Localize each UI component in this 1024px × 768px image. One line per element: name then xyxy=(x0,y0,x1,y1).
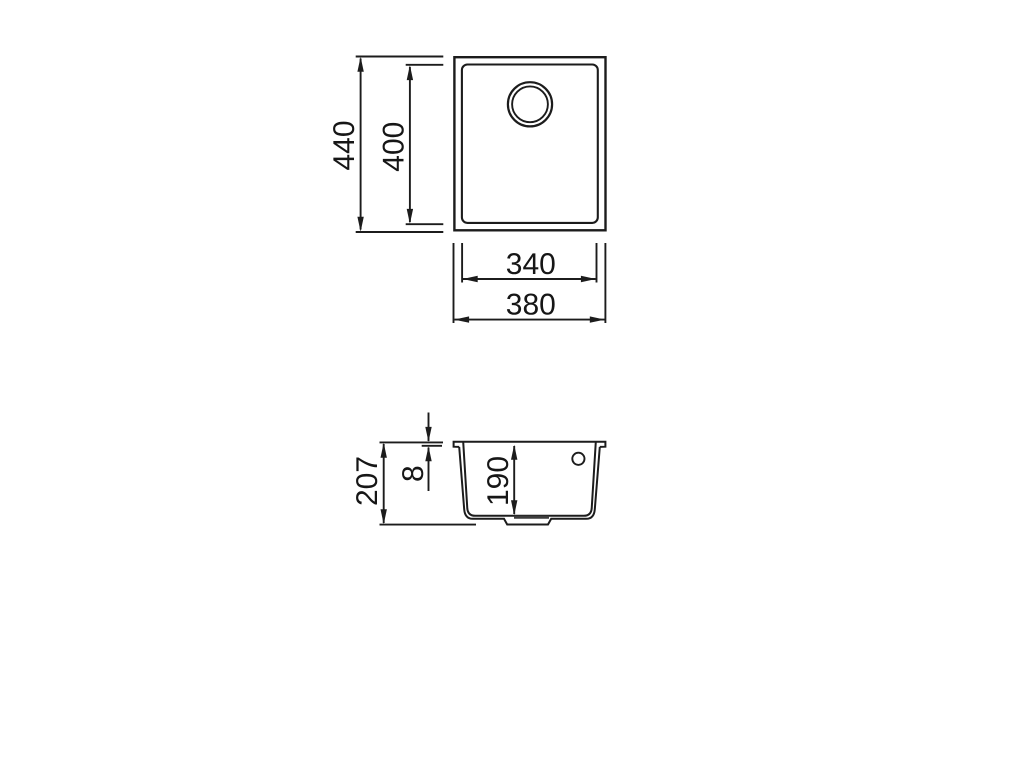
svg-text:400: 400 xyxy=(378,122,411,172)
svg-text:440: 440 xyxy=(328,120,361,170)
svg-text:207: 207 xyxy=(351,456,384,506)
svg-text:340: 340 xyxy=(506,248,556,281)
svg-text:8: 8 xyxy=(397,465,430,482)
svg-text:380: 380 xyxy=(506,288,556,321)
svg-text:190: 190 xyxy=(482,456,515,506)
